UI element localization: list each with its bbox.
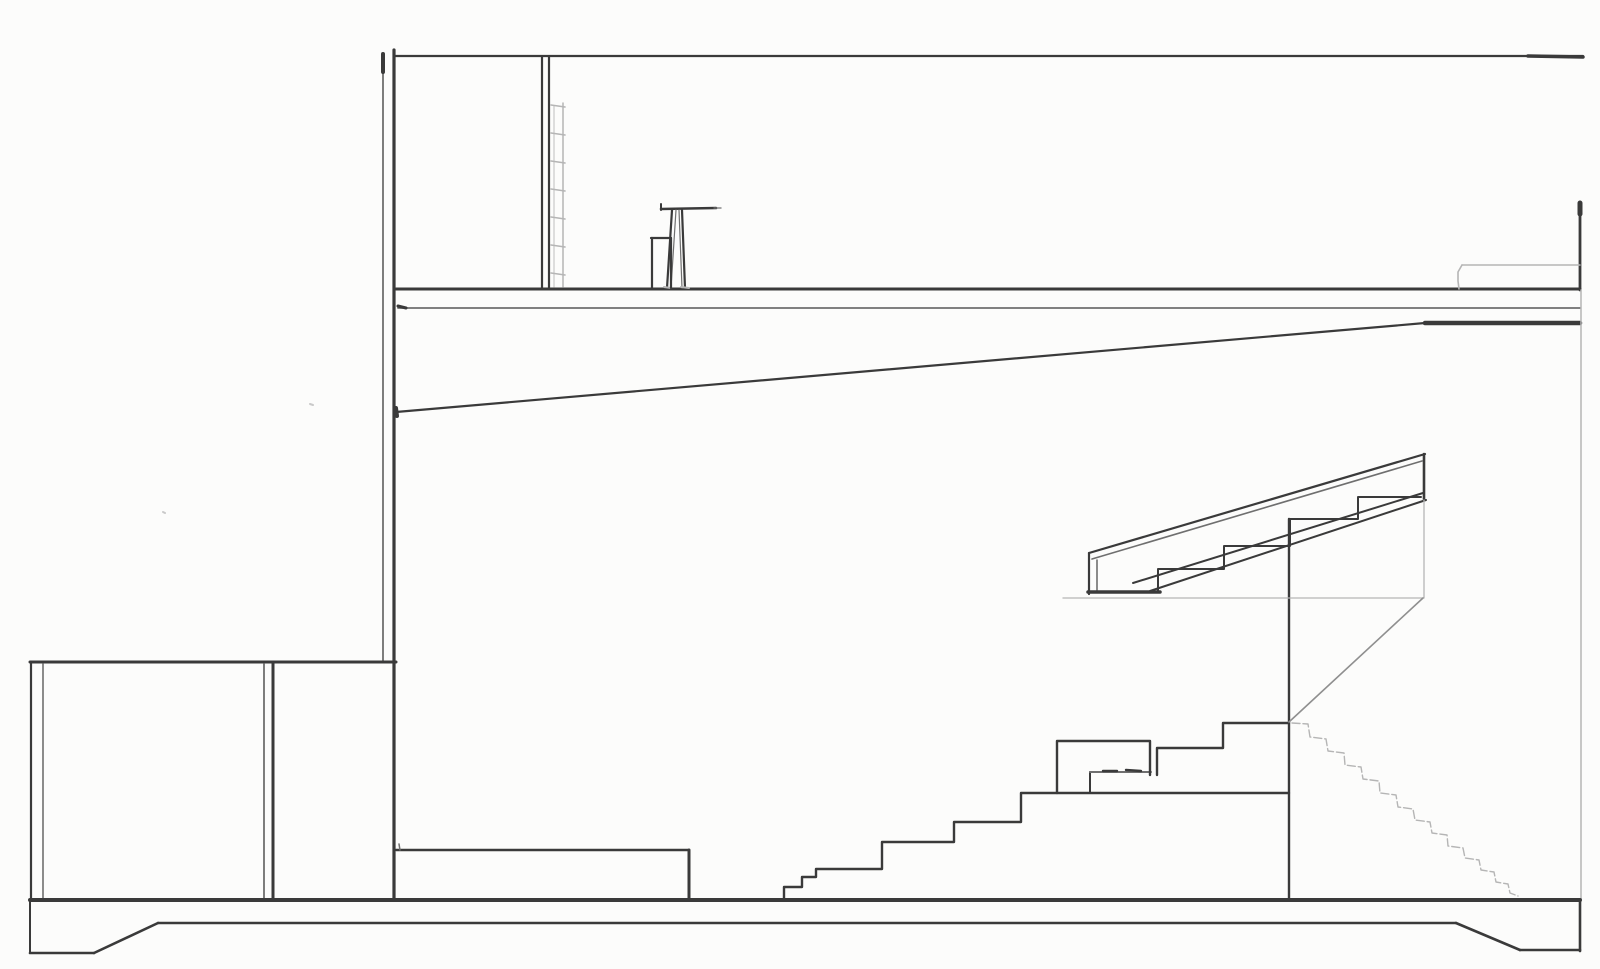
table-leg-right (682, 210, 685, 288)
step-box-outline (1057, 741, 1150, 793)
ceiling-slope-start-blob (396, 408, 397, 416)
slab-left-diagonal (94, 923, 158, 953)
ghost-stair-zigzag (1292, 723, 1518, 896)
platform-top-left-tick (399, 844, 400, 850)
upper-steps-profile (1157, 723, 1289, 775)
ceiling-slope-line (396, 323, 1425, 412)
upper-floor-lower-line-start-blob (398, 306, 406, 308)
counter-left-curve (1458, 265, 1462, 289)
roof-line-right-emphasis (1528, 56, 1583, 57)
table-foot-right (681, 287, 689, 288)
stair-section-sketch (0, 0, 1600, 969)
projection-diagonal (1289, 598, 1423, 722)
stair-channel-top-chord-outer (1089, 454, 1425, 553)
paper-speck-1 (310, 404, 313, 405)
scanned-sketch-page (0, 0, 1600, 969)
paper-speck-2 (163, 512, 165, 513)
main-steps-profile (784, 793, 1289, 899)
table-top-line (661, 208, 716, 209)
step-overlay-tread-dash-2 (1126, 770, 1141, 771)
slab-right-diagonal (1456, 923, 1520, 950)
